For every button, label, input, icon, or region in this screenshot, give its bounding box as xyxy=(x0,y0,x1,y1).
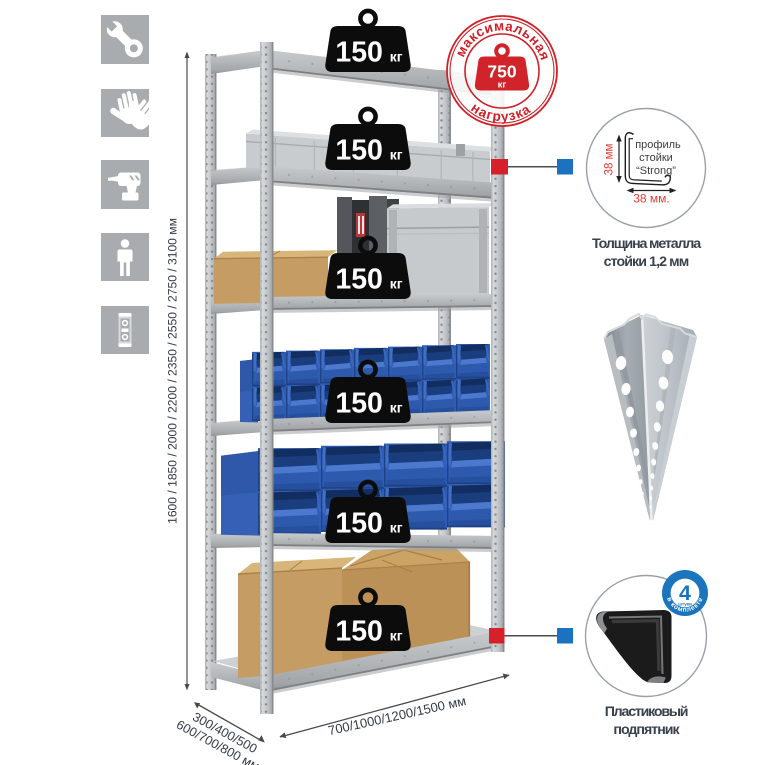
svg-text:штуки: штуки xyxy=(678,602,692,607)
svg-text:Толщина металла: Толщина металла xyxy=(592,236,701,252)
svg-text:700/1000/1200/1500 мм: 700/1000/1200/1500 мм xyxy=(327,693,468,738)
svg-text:стойки: стойки xyxy=(639,152,673,164)
svg-text:38 мм.: 38 мм. xyxy=(633,192,670,206)
svg-text:1600 / 1850 / 2000 / 2200 / 23: 1600 / 1850 / 2000 / 2200 / 2350 / 2550 … xyxy=(166,218,180,524)
svg-text:стойки 1,2 мм: стойки 1,2 мм xyxy=(604,254,689,270)
svg-text:подпятник: подпятник xyxy=(613,722,680,738)
svg-text:750: 750 xyxy=(487,62,516,82)
svg-text:38 мм: 38 мм xyxy=(604,144,616,176)
svg-text:“Strong”: “Strong” xyxy=(636,165,676,177)
svg-text:кг: кг xyxy=(498,80,507,91)
svg-text:профиль: профиль xyxy=(635,139,681,151)
svg-text:Пластиковый: Пластиковый xyxy=(605,704,688,720)
